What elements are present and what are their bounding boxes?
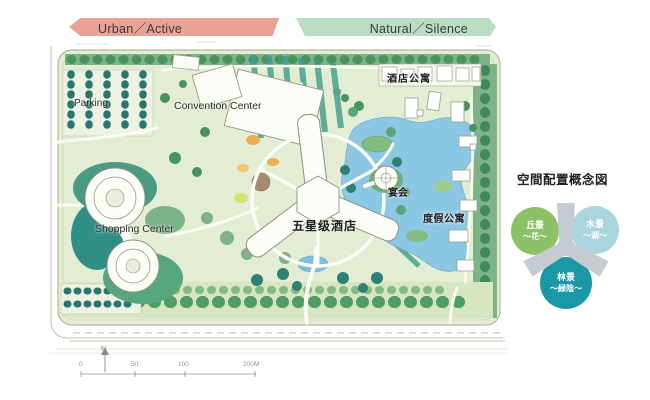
- concept-node-forest-sub: ～緑陰～: [550, 284, 582, 294]
- scale-tick-50: 50: [131, 361, 138, 368]
- concept-node-water-label: 水景: [586, 219, 604, 231]
- page: Urban／Active Natural／Silence: [0, 0, 650, 400]
- concept-node-hill: 丘景 ～花～: [511, 207, 559, 255]
- scale-tick-200m: 200M: [243, 361, 259, 368]
- banner-natural-silence: Natural／Silence: [296, 18, 496, 36]
- label-five-star-hotel: 五星级酒店: [292, 217, 357, 234]
- concept-diagram: 丘景 ～花～ 水景 ～湖～ 林景 ～緑陰～: [505, 190, 640, 315]
- concept-node-hill-label: 丘景: [526, 220, 544, 232]
- scale-bar: [81, 371, 256, 377]
- label-hotel-apartments: 酒店公寓: [387, 70, 431, 85]
- concept-diagram-title: 空間配置概念図: [517, 169, 608, 188]
- concept-node-hill-sub: ～花～: [523, 232, 547, 242]
- banner-urban-active: Urban／Active: [69, 18, 279, 36]
- concept-node-forest: 林景 ～緑陰～: [540, 257, 592, 309]
- label-convention-center: Convention Center: [174, 100, 262, 112]
- north-label: N: [101, 346, 106, 353]
- banner-urban-label: Urban／Active: [98, 18, 182, 37]
- label-parking: Parking: [74, 98, 108, 109]
- label-banquet: 宴会: [388, 184, 408, 199]
- concept-node-water-sub: ～湖～: [583, 231, 607, 241]
- scale-tick-0: 0: [79, 361, 83, 368]
- concept-node-forest-label: 林景: [557, 272, 575, 284]
- scale-tick-100: 100: [178, 361, 189, 368]
- concept-node-water: 水景 ～湖～: [571, 206, 619, 254]
- banner-natural-label: Natural／Silence: [370, 18, 468, 37]
- label-resort-apartments: 度假公寓: [423, 210, 465, 225]
- label-shopping-center: Shopping Center: [95, 223, 174, 235]
